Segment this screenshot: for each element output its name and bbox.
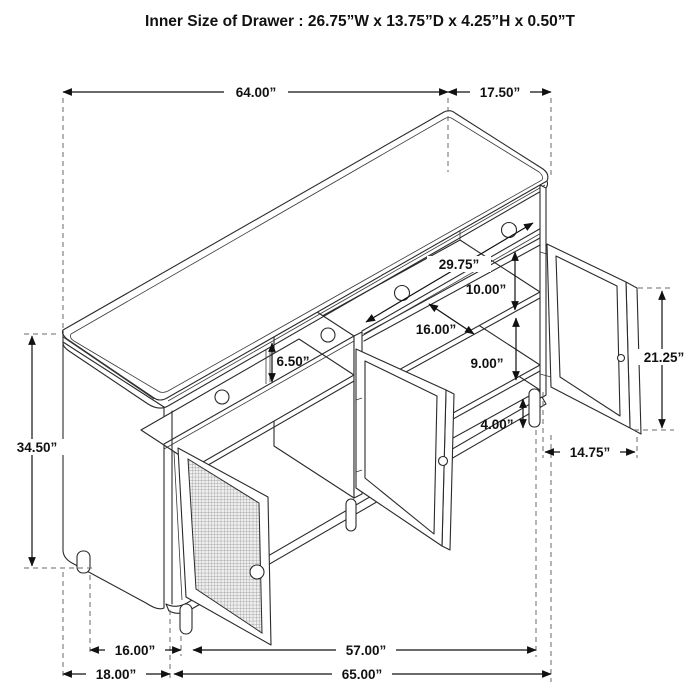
dim-shelf-depth: 16.00” bbox=[416, 322, 457, 337]
dim-left-section-width: 16.00” bbox=[115, 643, 156, 658]
leg bbox=[346, 499, 356, 531]
dim-overall-height: 34.50” bbox=[17, 440, 58, 455]
leg bbox=[529, 389, 540, 427]
dim-lower-shelf-spacing: 9.00” bbox=[470, 356, 503, 371]
dim-right-compartment-width: 29.75” bbox=[439, 257, 480, 272]
dim-door-width: 14.75” bbox=[570, 445, 611, 460]
dim-side-base-depth: 18.00” bbox=[96, 667, 137, 682]
dim-upper-shelf-spacing: 10.00” bbox=[466, 282, 507, 297]
dimension-diagram: 64.00” 17.50” 34.50” 29.75” 10.00” 16.00… bbox=[0, 0, 700, 700]
dim-overall-width: 64.00” bbox=[236, 85, 277, 100]
drawer-knob bbox=[321, 328, 335, 342]
right-door bbox=[540, 244, 641, 434]
drawer-knob bbox=[215, 390, 229, 404]
leg bbox=[77, 551, 90, 573]
dim-door-height: 21.25” bbox=[644, 350, 685, 365]
door-knob bbox=[439, 457, 448, 466]
drawer-knob bbox=[502, 223, 517, 238]
dim-overall-depth: 17.50” bbox=[480, 85, 521, 100]
dim-leg-height: 4.00” bbox=[480, 417, 513, 432]
door-knob bbox=[618, 355, 625, 362]
drawer-knob bbox=[395, 286, 410, 301]
door-knob bbox=[250, 565, 264, 579]
dim-drawer-front-height: 6.50” bbox=[276, 354, 309, 369]
right-corner-post bbox=[540, 185, 546, 399]
dim-right-section-width: 57.00” bbox=[346, 643, 387, 658]
diagram-title: Inner Size of Drawer : 26.75”W x 13.75”D… bbox=[145, 13, 575, 30]
leg bbox=[180, 604, 192, 634]
cabinet-line-drawing: 64.00” 17.50” 34.50” 29.75” 10.00” 16.00… bbox=[0, 0, 700, 700]
dim-front-base-width: 65.00” bbox=[342, 667, 383, 682]
